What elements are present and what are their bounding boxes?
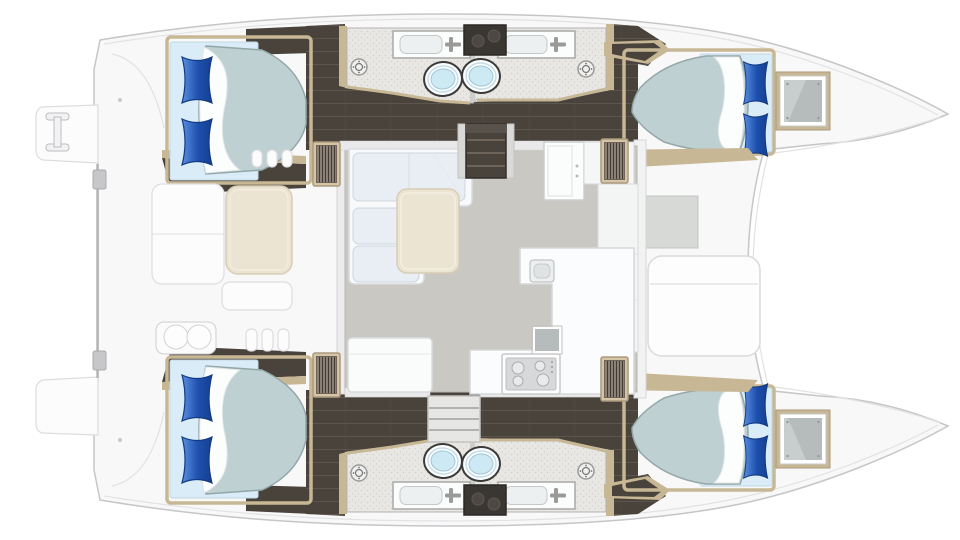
salon xyxy=(313,124,646,442)
fridge xyxy=(544,142,584,200)
companionway-steps-starboard xyxy=(428,396,480,442)
galley-sink xyxy=(530,260,554,282)
deck-hatch xyxy=(464,25,506,55)
wet-bar xyxy=(156,322,216,354)
foredeck-lounge xyxy=(648,256,760,356)
bow-hatch xyxy=(776,72,830,130)
floor-plan-drawing xyxy=(0,0,960,540)
rail-fitting xyxy=(93,351,106,370)
salon-cabinet xyxy=(348,338,432,392)
rail-fitting xyxy=(93,170,106,189)
stove xyxy=(502,354,560,394)
cockpit-bench xyxy=(222,282,292,310)
stern-platforms xyxy=(36,105,106,435)
heads-port xyxy=(339,24,614,103)
swim-platform-starboard xyxy=(36,377,98,435)
salon-table xyxy=(397,189,459,273)
catamaran-floor-plan xyxy=(0,0,960,540)
companionway-steps-port xyxy=(458,124,514,178)
cockpit-table xyxy=(226,186,292,274)
